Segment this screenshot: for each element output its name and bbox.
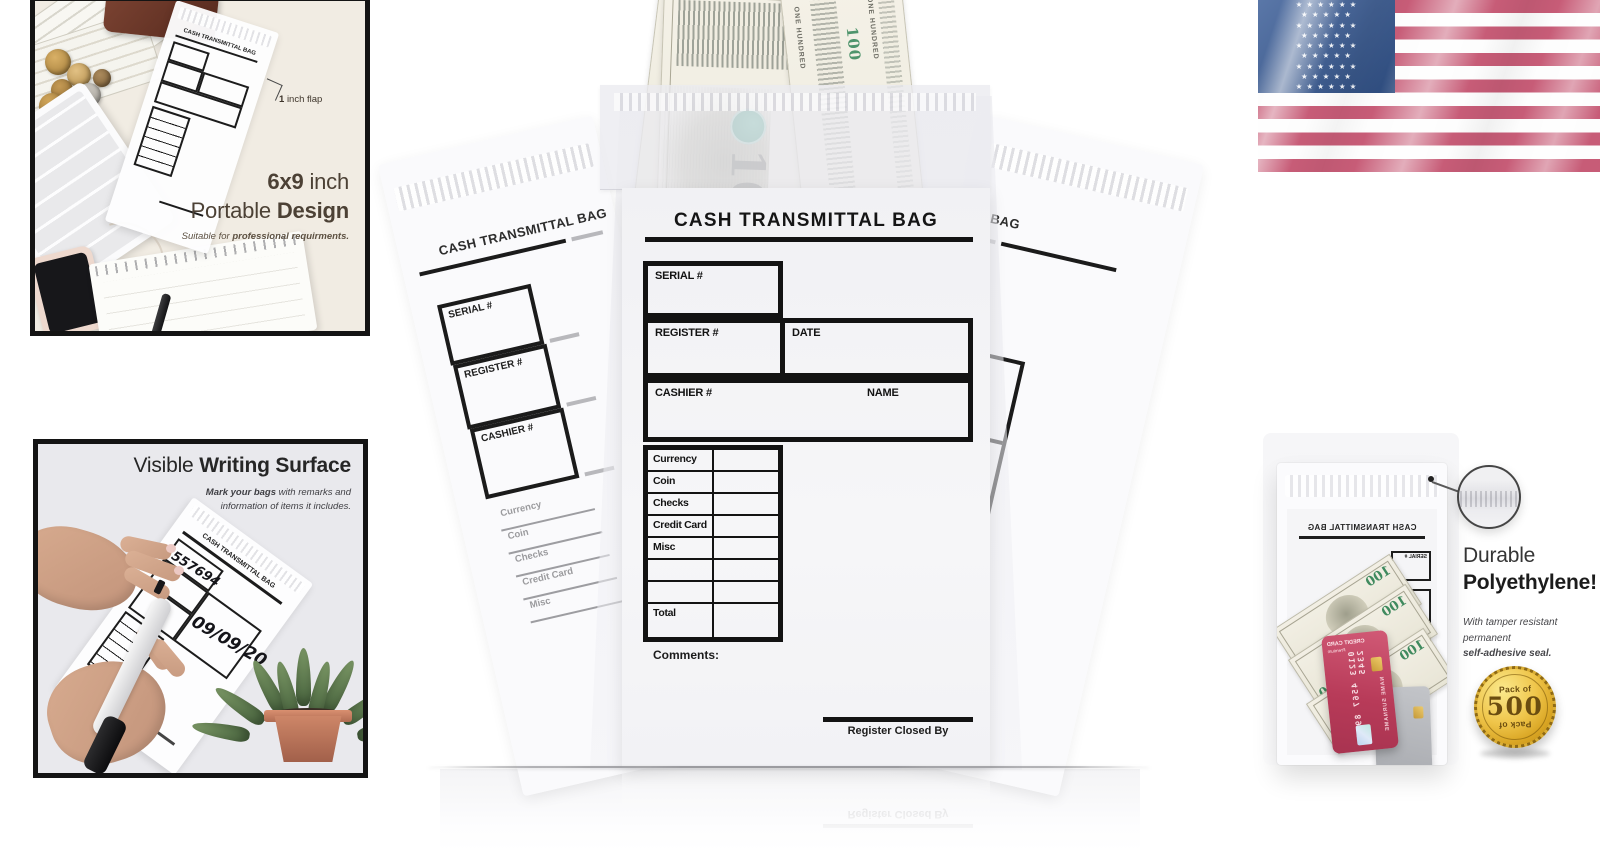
durable-heading: Durable Polyethylene! <box>1463 543 1597 597</box>
row-label: Total <box>648 604 714 637</box>
serial-label: SERIAL # <box>648 266 778 286</box>
subtitle-line1: Mark your bags with remarks and <box>206 486 351 500</box>
serial-box: SERIAL # <box>643 261 783 318</box>
panel-writing-surface: Visible Writing Surface Mark your bags w… <box>33 439 368 778</box>
plant-pot <box>270 716 346 762</box>
amount-table: Currency Coin Checks Credit Card Misc To… <box>643 445 783 642</box>
form-rule-stub <box>571 230 603 241</box>
usa-flag: ★ ★ ★ ★ ★ ★ ★ ★ ★ ★ ★ ★ ★ ★ ★ ★ ★ ★ ★ ★ … <box>1258 0 1600 172</box>
headline-portable: Portable <box>191 198 271 223</box>
bill-edge-text: ONE HUNDRED <box>866 0 880 60</box>
row-label <box>648 560 714 580</box>
row-label <box>648 582 714 602</box>
bag-back-panel: CASH TRANSMITTAL BAG SERIAL # 100 100 <box>1287 509 1437 755</box>
row-value <box>714 538 778 558</box>
table-row: Checks <box>648 494 778 516</box>
cashier-box: CASHIER # NAME <box>643 378 973 442</box>
row-value <box>714 472 778 492</box>
row-value <box>714 516 778 536</box>
subtitle-line1: With tamper resistant permanent <box>1463 615 1600 646</box>
headline-unit: inch <box>309 169 349 194</box>
row-label: Coin <box>648 472 714 492</box>
flap-note-text: inch flap <box>287 94 322 105</box>
flap-callout-label: 1 inch flap <box>279 94 322 105</box>
mini-form-table <box>133 106 190 177</box>
seal-texture-detail <box>1457 491 1521 507</box>
table-row: Currency <box>648 450 778 472</box>
fingernail <box>174 566 184 575</box>
pack-of-500-badge: Pack of 500 Pack of <box>1474 666 1556 748</box>
plant-leaf <box>296 648 311 706</box>
form-title: CASH TRANSMITTAL BAG <box>622 210 990 232</box>
card-chip <box>1413 706 1423 718</box>
product-image-gallery: CASH TRANSMITTAL BAG 1 inch flap 6x9 inc… <box>0 0 1600 852</box>
table-row: Credit Card <box>648 516 778 538</box>
bag-seal-strip <box>1285 475 1439 497</box>
mirrored-bag-title: CASH TRANSMITTAL BAG <box>1287 523 1437 532</box>
subtitle-bold: professional requirments. <box>232 231 349 242</box>
seal-magnifier <box>1457 465 1521 529</box>
row-value <box>714 494 778 514</box>
badge-bottom-text: Pack of <box>1499 719 1532 730</box>
row-label: Currency <box>648 450 714 470</box>
row-value <box>714 560 778 580</box>
cashier-label: CASHIER # <box>648 383 719 403</box>
row-label: Credit Card <box>648 516 714 536</box>
panel-title: Visible Writing Surface <box>133 454 351 478</box>
reflection-fade <box>622 770 990 848</box>
durable-subtitle: With tamper resistant permanent self-adh… <box>1463 615 1600 662</box>
panel-subtitle: Suitable for professional requirments. <box>182 231 349 242</box>
heading-line2: Polyethylene! <box>1463 570 1597 597</box>
register-date-row: REGISTER # DATE <box>643 318 973 378</box>
form-stub <box>549 332 579 343</box>
bag-seal-strip <box>394 143 594 211</box>
panel-headline: 6x9 inch Portable Design <box>191 167 349 225</box>
subtitle-prefix: Suitable for <box>182 231 233 242</box>
date-label: DATE <box>785 323 968 343</box>
pink-credit-card: CREDIT CARD Premium 0123 4567 8901 2345 … <box>1321 630 1399 754</box>
card-holder: NAME SURNAME <box>1380 676 1392 731</box>
name-label: NAME <box>860 383 906 403</box>
panel-durable-polyethylene: CASH TRANSMITTAL BAG SERIAL # 100 100 <box>1225 425 1600 770</box>
coin <box>93 69 111 87</box>
mirrored-title-rule <box>1299 536 1425 539</box>
panel-portable-design: CASH TRANSMITTAL BAG 1 inch flap 6x9 inc… <box>30 0 370 336</box>
closed-by-label: Register Closed By <box>823 725 973 737</box>
bag-reflection: Register Closed By <box>622 770 990 848</box>
subtitle-line2: information of items it includes. <box>206 500 351 514</box>
badge-value: 500 <box>1487 694 1544 720</box>
bill-edge-text: ONE HUNDRED <box>792 6 806 70</box>
row-label: Misc <box>648 538 714 558</box>
headline-line2: Portable Design <box>191 196 349 225</box>
form-stub <box>566 396 596 407</box>
surface-shadow-line <box>426 766 1152 768</box>
headline-line1: 6x9 inch <box>191 167 349 196</box>
table-row <box>648 560 778 582</box>
row-value <box>714 450 778 470</box>
front-bag-form: CASH TRANSMITTAL BAG SERIAL # REGISTER #… <box>622 188 990 768</box>
card-chip <box>1370 657 1382 672</box>
headline-design: Design <box>277 198 349 223</box>
main-product-stage: CASH TRANSMITTAL BAG SERIAL # REGISTER #… <box>440 0 1140 852</box>
mirrored-content: CASH TRANSMITTAL BAG SERIAL # 100 100 <box>1287 509 1437 755</box>
subtitle-bold: Mark your bags <box>206 487 276 498</box>
bag-seal-strip <box>986 143 1188 212</box>
comments-label: Comments: <box>653 648 719 662</box>
table-row <box>648 582 778 604</box>
badge-coin-face: Pack of 500 Pack of <box>1477 669 1553 745</box>
panel-subtitle: Mark your bags with remarks and informat… <box>206 486 351 515</box>
table-row: Coin <box>648 472 778 494</box>
title-bold: Writing Surface <box>199 454 351 477</box>
flag-wave-sheen <box>1258 0 1600 172</box>
form-rule <box>1001 242 1117 272</box>
flap-seal-texture <box>614 93 976 111</box>
table-row: Misc <box>648 538 778 560</box>
headline-size: 6x9 <box>267 169 303 194</box>
subtitle-rest: with remarks and <box>279 487 351 498</box>
bill-corner-100: 100 <box>843 26 864 62</box>
filled-bag-back-view: CASH TRANSMITTAL BAG SERIAL # 100 100 <box>1277 463 1447 765</box>
badge-shadow <box>1480 749 1550 758</box>
flap-note-number: 1 <box>279 94 284 105</box>
serial-label: SERIAL # <box>442 289 532 325</box>
date-box: DATE <box>785 323 968 373</box>
row-value <box>714 604 778 637</box>
register-box: REGISTER # <box>648 323 785 373</box>
form-title-rule <box>645 237 973 242</box>
plant-leaf <box>356 719 368 744</box>
bag-flap <box>600 85 990 190</box>
register-label: REGISTER # <box>648 323 780 343</box>
heading-line1: Durable <box>1463 543 1597 570</box>
row-value <box>714 582 778 602</box>
signature-line <box>823 717 973 722</box>
table-row-total: Total <box>648 604 778 637</box>
subtitle-line2: self-adhesive seal. <box>1463 648 1551 659</box>
card-hologram <box>1355 724 1372 745</box>
succulent-plant <box>234 652 368 778</box>
mirrored-serial-label: SERIAL # <box>1393 553 1429 561</box>
row-label: Checks <box>648 494 714 514</box>
fingernail <box>166 544 176 553</box>
badge-top-text: Pack of <box>1499 684 1532 695</box>
title-light: Visible <box>133 454 193 477</box>
